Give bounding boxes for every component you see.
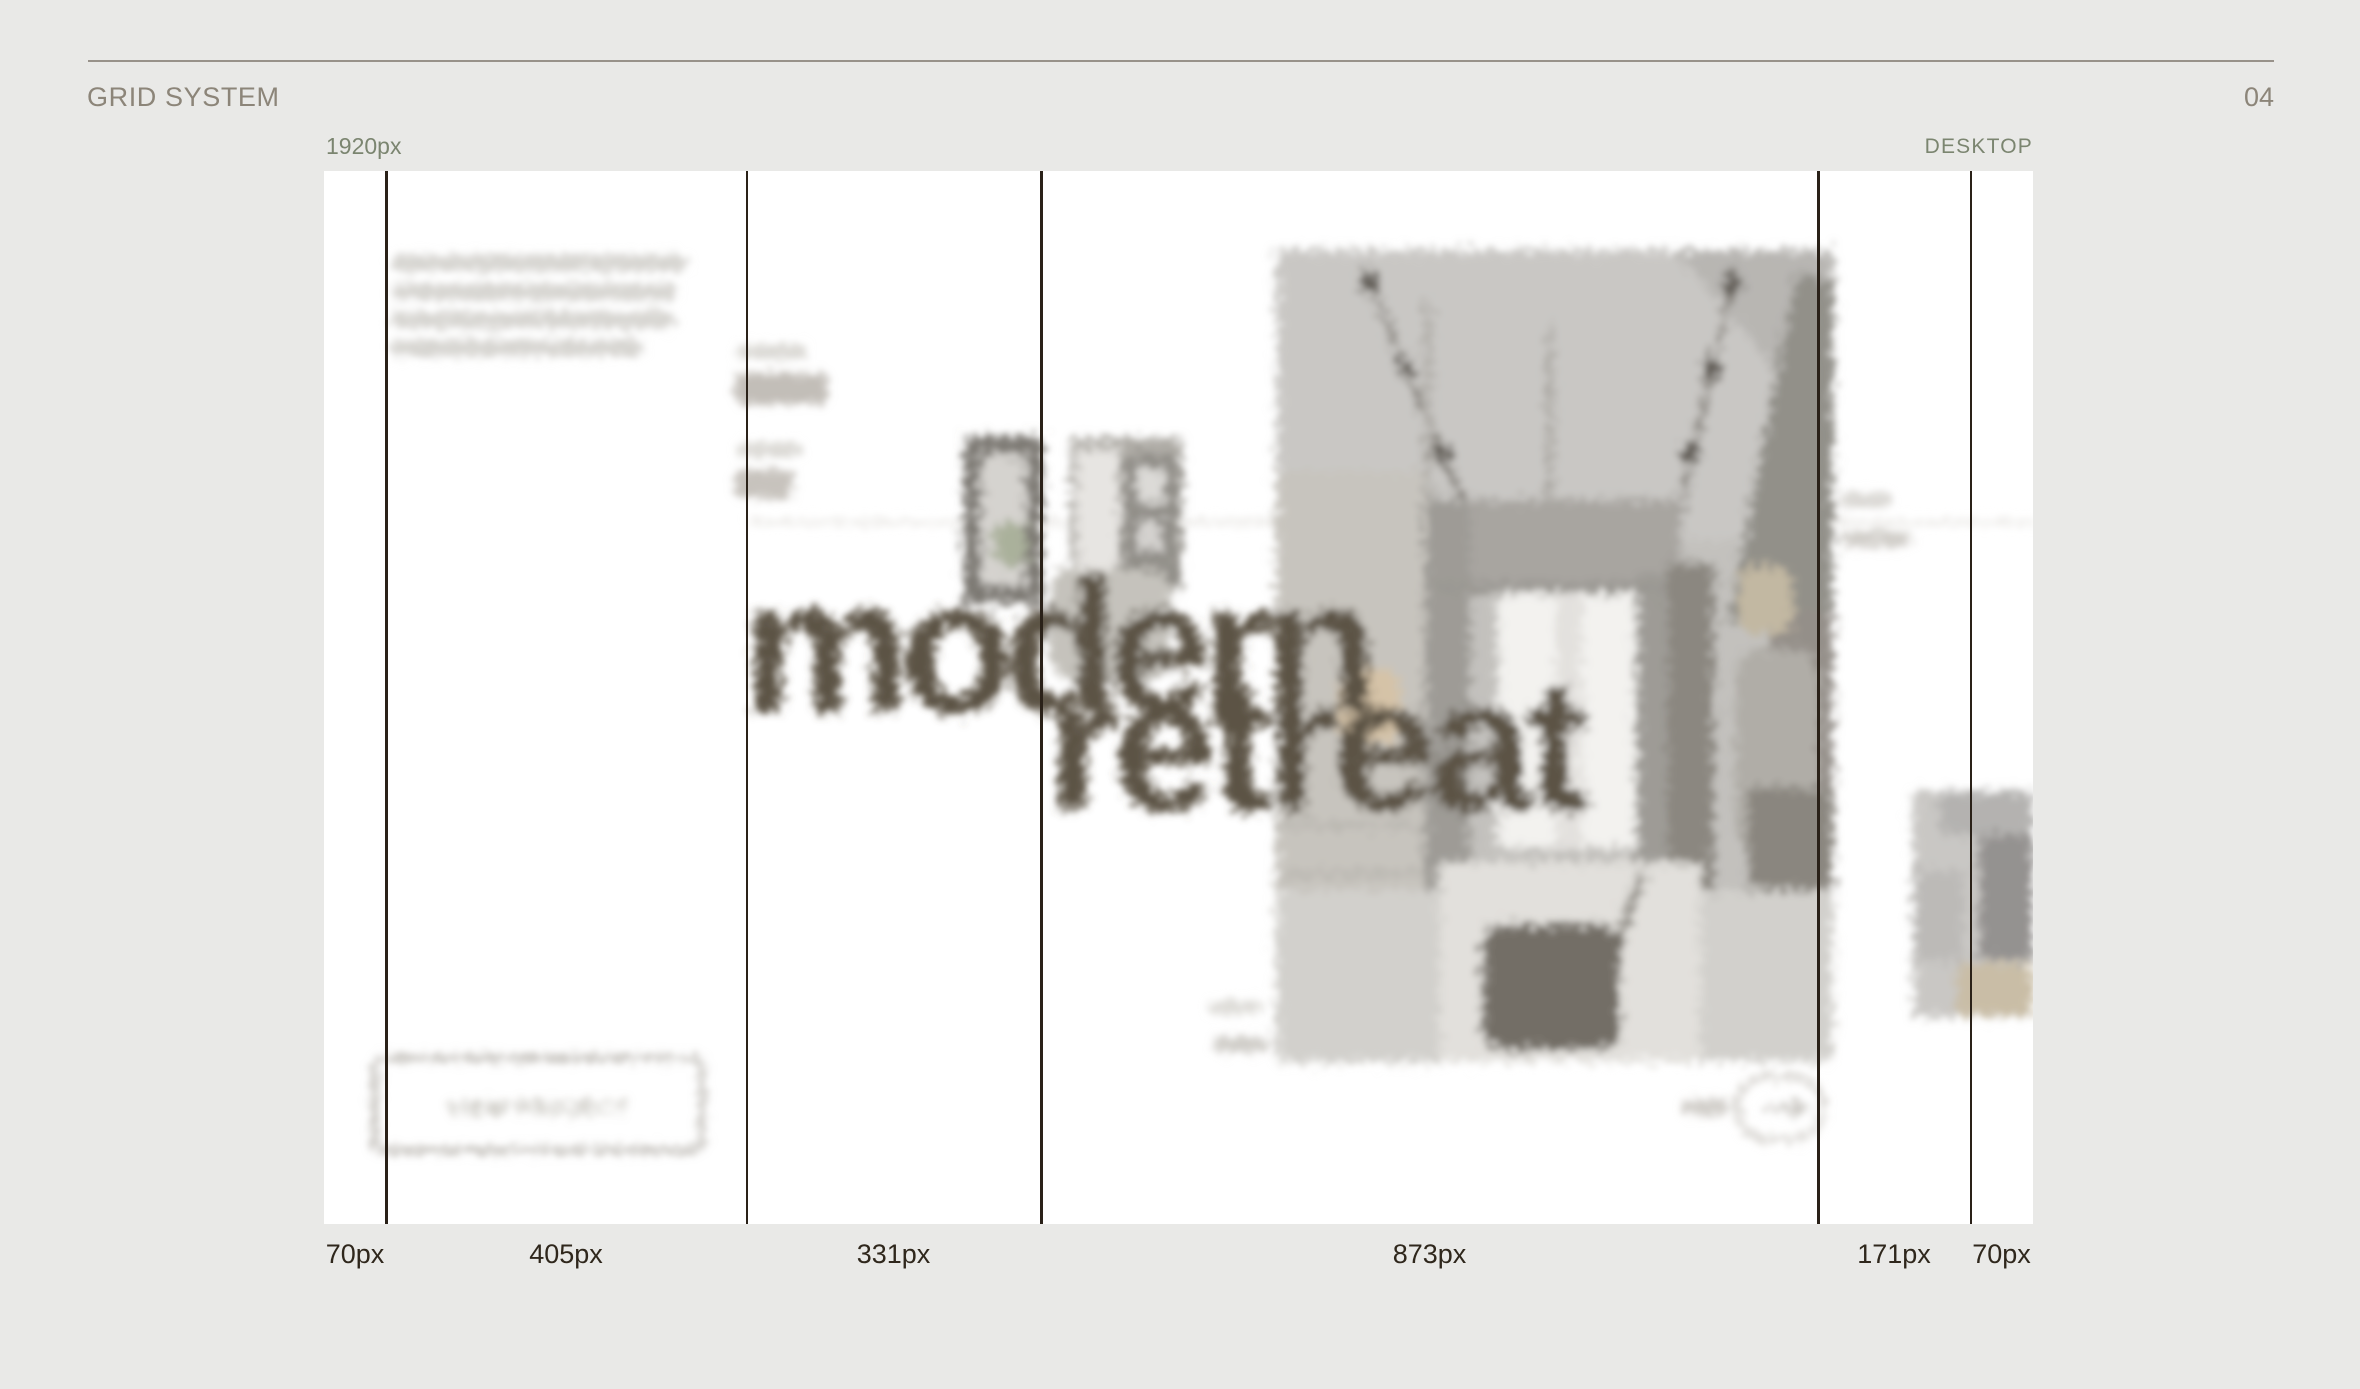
svg-text:VIEW PROJECT: VIEW PROJECT	[447, 1097, 629, 1120]
svg-text:retreat: retreat	[1046, 639, 1587, 851]
